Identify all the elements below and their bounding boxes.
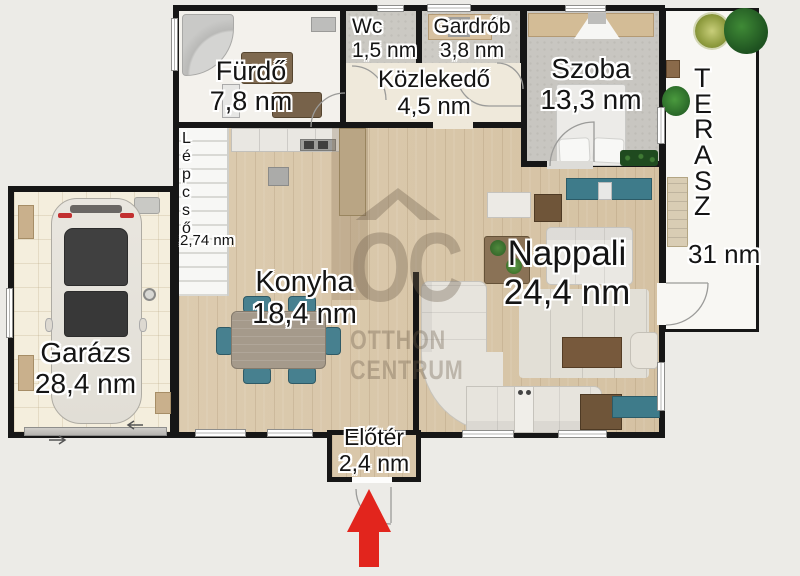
window (462, 430, 514, 438)
door-opening (433, 122, 473, 129)
entrance-arrow-icon (359, 531, 379, 567)
label-entry: Előtér 2,4 nm (325, 425, 423, 477)
window (195, 429, 246, 437)
room-name: Fürdő (216, 56, 287, 86)
label-bathroom: Fürdő 7,8 nm (186, 56, 316, 116)
car-mirror-icon (45, 318, 53, 332)
room-area: 18,4 nm (252, 298, 357, 330)
hedge-plant-icon (620, 150, 658, 166)
bed-pillow-icon (558, 137, 590, 164)
armchair-icon (630, 332, 658, 369)
room-area: 28,4 nm (35, 368, 136, 399)
window (558, 430, 607, 438)
window (657, 107, 665, 144)
lounger-icon (667, 177, 688, 247)
window (171, 18, 178, 71)
entrance-arrow-icon (347, 489, 391, 532)
label-bedroom: Szoba 13,3 nm (527, 53, 655, 116)
car-roof-glass-icon (64, 291, 128, 337)
room-area: 4,5 nm (397, 93, 470, 120)
dining-chair-icon (324, 327, 341, 355)
label-wc: Wc 1,5 nm (352, 15, 422, 62)
window (565, 5, 606, 12)
sofa-console-icon (514, 386, 534, 433)
car-spoiler-icon (70, 205, 122, 213)
label-stairs: Lépcső (182, 130, 188, 238)
cabinet-icon (534, 194, 562, 222)
window (427, 4, 471, 12)
terrace-plant-icon (724, 8, 768, 54)
dining-chair-icon (288, 367, 316, 384)
lamp-base-icon (588, 13, 606, 24)
room-area: 31 nm (688, 239, 760, 269)
room-area: 2,4 nm (339, 450, 409, 476)
car-taillight-icon (120, 213, 134, 218)
sideboard-icon (612, 396, 660, 418)
label-terrace-area: 31 nm (688, 240, 760, 269)
room-name: Lépcső (182, 130, 191, 237)
floor-plan: OC OTTHON CENTRUM Fürdő 7,8 nm Wc 1,5 nm… (0, 0, 800, 576)
window (377, 5, 404, 12)
door-opening (547, 161, 593, 169)
cooktop-icon (318, 141, 328, 149)
tv-icon (598, 182, 612, 200)
door-opening (657, 283, 666, 325)
dining-chair-icon (243, 367, 271, 384)
garage-shelf-icon (155, 392, 171, 414)
window (267, 429, 313, 437)
car-roof-glass-icon (64, 228, 128, 286)
cupholder-icon (526, 390, 531, 395)
car-mirror-icon (139, 318, 147, 332)
cooktop-icon (304, 141, 314, 149)
label-wardrobe: Gardrób 3,8 nm (420, 15, 524, 62)
watermark-line2: CENTRUM (350, 356, 446, 386)
garage-shelf-icon (18, 205, 34, 239)
room-name: Gardrób (433, 15, 510, 38)
desk-icon (487, 192, 531, 218)
stove-box-icon (268, 167, 289, 186)
room-name: Közlekedő (378, 66, 490, 93)
garage-door-icon (24, 427, 167, 436)
label-garage: Garázs 28,4 nm (18, 337, 153, 400)
room-area: 1,5 nm (352, 39, 416, 62)
label-kitchen: Konyha 18,4 nm (232, 266, 377, 331)
coffee-table-icon (562, 337, 622, 368)
room-name: Wc (352, 15, 382, 38)
room-name: Garázs (40, 337, 130, 368)
label-hallway: Közlekedő 4,5 nm (348, 67, 520, 121)
room-area: 13,3 nm (540, 84, 641, 115)
cupholder-icon (518, 390, 523, 395)
room-area: 2,74 nm (180, 232, 234, 249)
room-area: 7,8 nm (210, 86, 293, 116)
room-name: Előtér (344, 424, 404, 450)
terrace-plant-icon (662, 86, 690, 116)
label-terrace: TERASZ (694, 66, 702, 220)
terrace-pot-icon (666, 60, 680, 78)
label-stairs-area: 2,74 nm (180, 233, 234, 250)
car-taillight-icon (58, 213, 72, 218)
room-area: 3,8 nm (440, 39, 504, 62)
window (657, 362, 665, 411)
room-name: Szoba (551, 53, 630, 84)
room-name: Konyha (255, 266, 353, 298)
room-name: TERASZ (694, 63, 714, 221)
bathroom-shelf-icon (311, 17, 336, 32)
room-area: 24,4 nm (504, 273, 630, 312)
door-opening (352, 477, 392, 483)
window (6, 288, 13, 338)
label-living-room: Nappali 24,4 nm (478, 234, 656, 312)
floor-drain-icon (143, 288, 156, 301)
room-name: Nappali (508, 234, 627, 273)
